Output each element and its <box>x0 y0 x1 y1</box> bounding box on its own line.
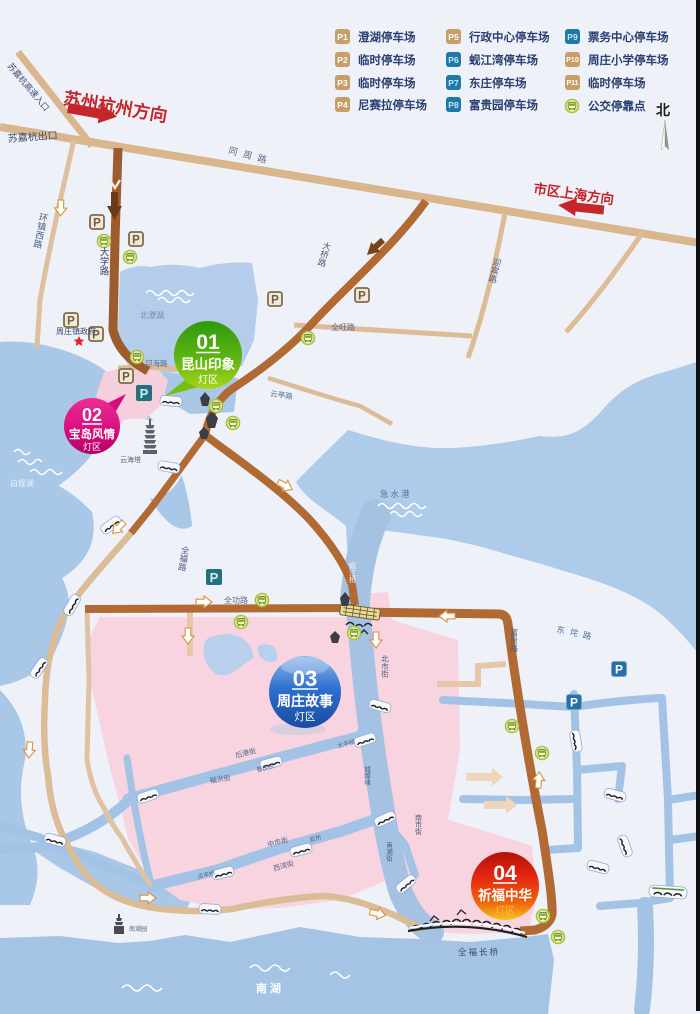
svg-text:P10: P10 <box>566 57 579 64</box>
svg-text:南市街: 南市街 <box>415 813 423 836</box>
svg-text:03: 03 <box>293 666 317 691</box>
svg-text:公交停靠点: 公交停靠点 <box>588 99 646 113</box>
svg-text:P7: P7 <box>448 78 459 88</box>
svg-text:急水港: 急水港 <box>380 489 412 499</box>
svg-text:P5: P5 <box>448 32 459 42</box>
svg-text:P11: P11 <box>566 80 578 87</box>
svg-text:临时停车场: 临时停车场 <box>358 76 416 90</box>
svg-text:南湖园: 南湖园 <box>129 925 147 933</box>
svg-text:尼赛拉停车场: 尼赛拉停车场 <box>358 98 427 112</box>
svg-text:宝岛风情: 宝岛风情 <box>69 427 115 441</box>
svg-text:昆山印象: 昆山印象 <box>181 356 235 372</box>
svg-text:北市街: 北市街 <box>380 655 389 679</box>
svg-text:全旺路: 全旺路 <box>331 322 355 332</box>
svg-text:P4: P4 <box>337 100 348 110</box>
svg-text:临时停车场: 临时停车场 <box>358 53 416 67</box>
svg-text:P1: P1 <box>337 32 348 42</box>
svg-text:灯区: 灯区 <box>198 374 218 386</box>
svg-text:P2: P2 <box>337 55 348 65</box>
svg-text:南湖: 南湖 <box>256 981 284 995</box>
svg-text:P9: P9 <box>567 32 578 42</box>
svg-text:周庄故事: 周庄故事 <box>277 693 333 709</box>
svg-text:周庄镇政府: 周庄镇政府 <box>56 326 96 336</box>
svg-text:富贵园停车场: 富贵园停车场 <box>469 98 538 112</box>
svg-text:澄湖停车场: 澄湖停车场 <box>358 30 416 44</box>
svg-text:P6: P6 <box>448 55 459 65</box>
svg-text:02: 02 <box>82 405 102 425</box>
svg-text:富贵路: 富贵路 <box>510 627 519 652</box>
svg-text:临时停车场: 临时停车场 <box>588 76 646 90</box>
svg-text:白蚬湖: 白蚬湖 <box>10 478 34 488</box>
svg-text:祈福中华: 祈福中华 <box>478 887 532 903</box>
svg-text:全功路: 全功路 <box>224 595 248 605</box>
svg-text:P3: P3 <box>337 78 348 88</box>
svg-text:P8: P8 <box>448 100 459 110</box>
svg-text:蚬江湾停车场: 蚬江湾停车场 <box>469 53 538 67</box>
svg-text:04: 04 <box>493 862 517 885</box>
svg-text:北澄湖: 北澄湖 <box>140 310 164 320</box>
svg-text:北: 北 <box>656 102 670 118</box>
svg-text:灯区: 灯区 <box>295 711 316 723</box>
svg-text:云海塔: 云海塔 <box>120 455 141 464</box>
svg-text:东庄停车场: 东庄停车场 <box>469 76 527 90</box>
svg-text:周庄小学停车场: 周庄小学停车场 <box>588 53 669 67</box>
svg-text:票务中心停车场: 票务中心停车场 <box>588 30 669 44</box>
svg-text:全福长桥: 全福长桥 <box>458 947 500 957</box>
svg-text:大学路: 大学路 <box>98 246 110 276</box>
svg-text:灯区: 灯区 <box>495 905 515 917</box>
svg-text:迎海路: 迎海路 <box>145 358 168 368</box>
svg-text:01: 01 <box>196 331 220 354</box>
svg-text:蚬江桥: 蚬江桥 <box>349 561 357 584</box>
svg-text:行政中心停车场: 行政中心停车场 <box>468 30 550 44</box>
svg-text:灯区: 灯区 <box>83 442 101 452</box>
